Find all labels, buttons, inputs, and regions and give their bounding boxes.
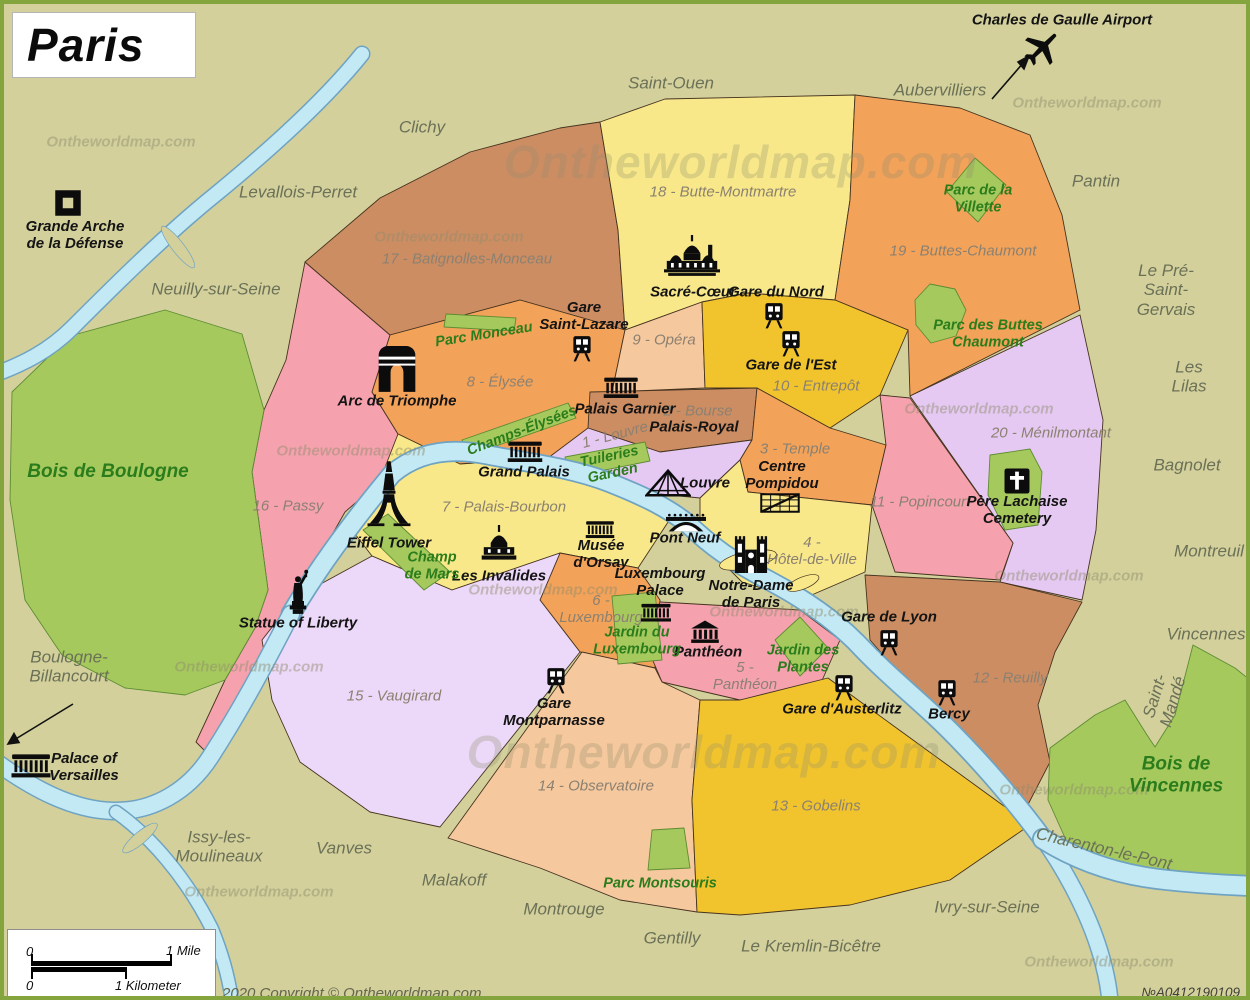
versailles-arrow-line	[14, 704, 73, 740]
palace-of-versailles-icon	[10, 752, 52, 778]
parc-montsouris-shape	[648, 828, 690, 870]
gare-saint-lazare-icon	[569, 335, 595, 363]
les-invalides-icon	[481, 520, 517, 566]
statue-of-liberty-icon	[285, 569, 312, 615]
map-title: Paris	[13, 18, 145, 72]
map-number: №A0412190109	[1141, 985, 1240, 1000]
luxembourg-palace-icon	[640, 602, 672, 622]
notre-dame-icon	[732, 535, 770, 573]
district-18-shape	[600, 95, 855, 330]
gare-de-lyon-icon	[876, 629, 902, 657]
scale-bar: 0 1 Mile 0 1 Kilometer	[7, 929, 216, 998]
louvre-pyramid-icon	[645, 469, 691, 497]
grand-palais-icon	[507, 440, 543, 463]
district-17-shape	[305, 122, 625, 335]
pont-neuf-icon	[666, 513, 706, 532]
pantheon-icon	[690, 621, 720, 644]
cdg-arrow-line	[992, 62, 1024, 99]
gare-de-l-est-icon	[778, 330, 804, 358]
copyright-text: 2020 Copyright © Ontheworldmap.com	[222, 985, 482, 1000]
map-canvas	[4, 4, 1246, 996]
sacre-coeur-icon	[664, 235, 720, 277]
arc-de-triomphe-icon	[375, 344, 419, 392]
pere-lachaise-cross-icon	[1005, 469, 1030, 494]
bercy-icon	[934, 679, 960, 707]
paris-tourist-map: Ontheworldmap.com Ontheworldmap.com Onth…	[0, 0, 1250, 1000]
scale-km-label: 1 Kilometer	[115, 978, 181, 993]
musee-d-orsay-icon	[585, 520, 615, 539]
palais-garnier-icon	[603, 376, 639, 399]
gare-montparnasse-icon	[543, 667, 569, 695]
gare-du-nord-icon	[761, 302, 787, 330]
scale-mile-bar	[31, 961, 172, 966]
centre-pompidou-icon	[760, 493, 800, 513]
map-title-box: Paris	[12, 12, 196, 78]
scale-km-zero: 0	[26, 978, 33, 993]
bois-de-boulogne-shape	[10, 310, 268, 695]
grande-arche-icon	[53, 188, 83, 218]
gare-austerlitz-icon	[831, 674, 857, 702]
versailles-arrow-head	[8, 734, 19, 745]
eiffel-tower-icon	[366, 460, 412, 530]
scale-km-bar	[31, 967, 127, 972]
